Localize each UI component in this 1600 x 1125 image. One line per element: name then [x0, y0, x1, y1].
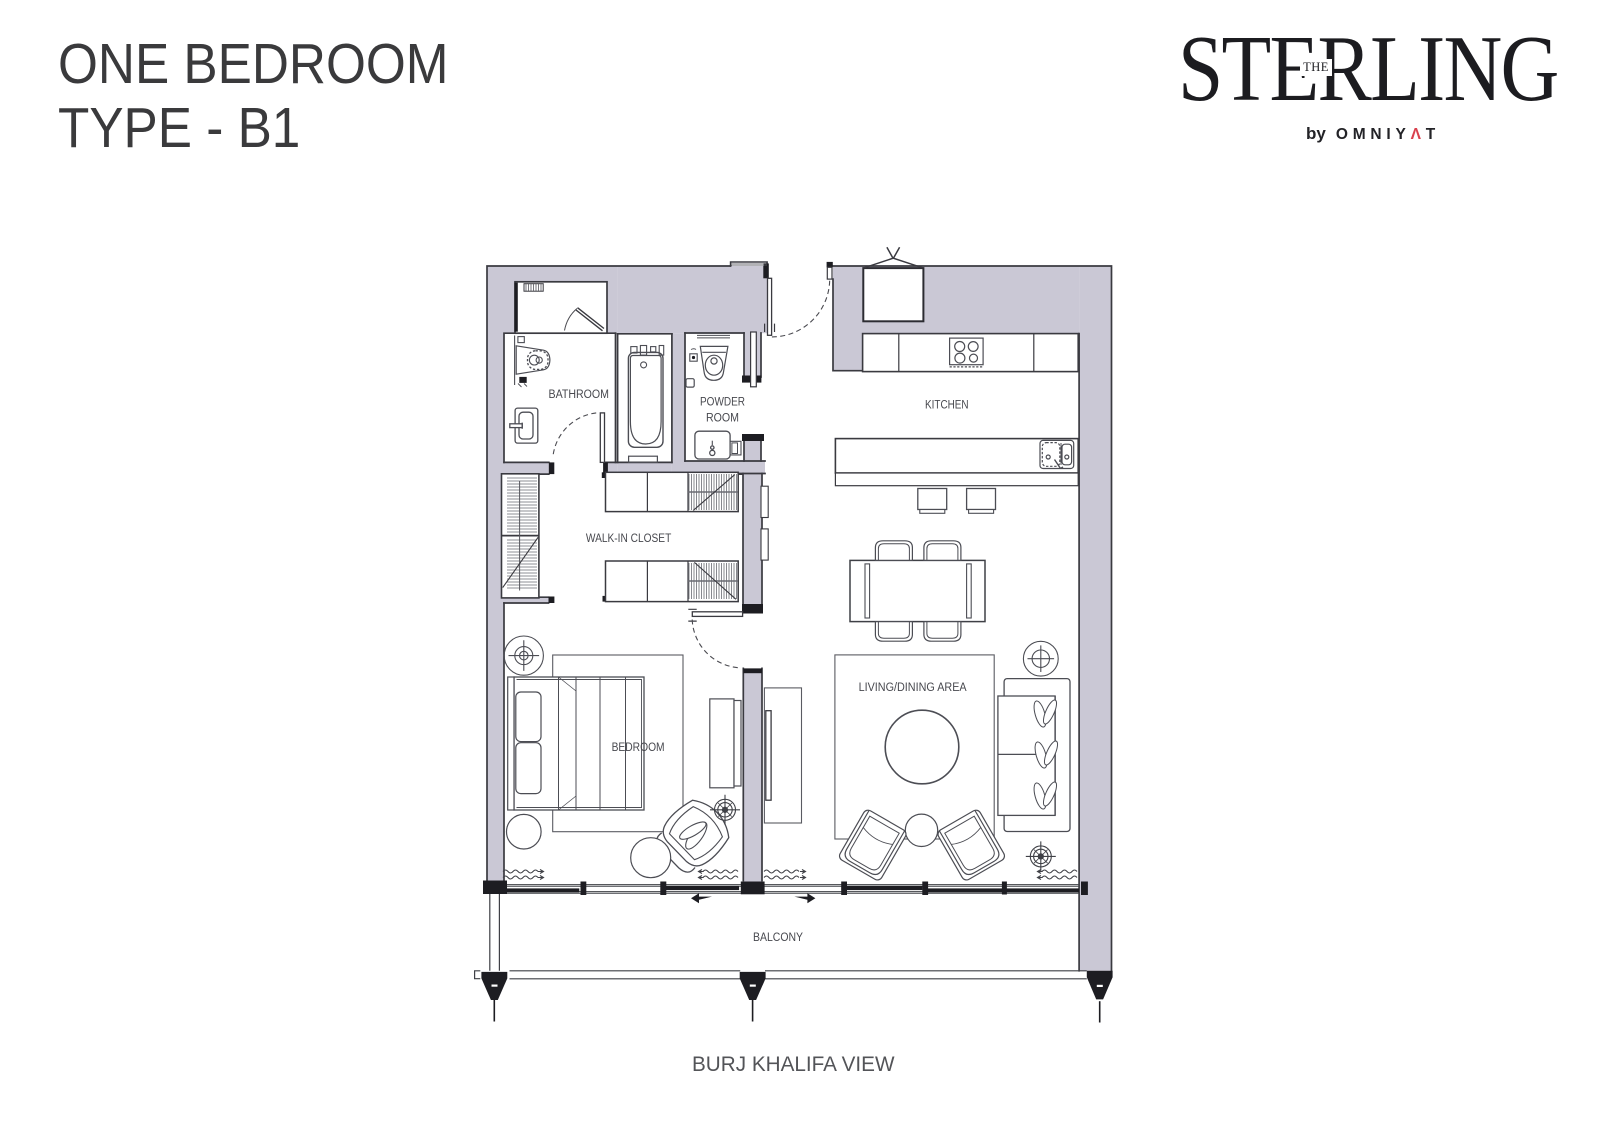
- svg-text:BURJ KHALIFA VIEW: BURJ KHALIFA VIEW: [692, 1052, 895, 1076]
- svg-text:BALCONY: BALCONY: [753, 932, 803, 944]
- svg-text:POWDER: POWDER: [700, 397, 745, 409]
- svg-text:ROOM: ROOM: [706, 413, 739, 425]
- svg-text:BEDROOM: BEDROOM: [612, 742, 665, 754]
- svg-text:WALK-IN CLOSET: WALK-IN CLOSET: [586, 533, 671, 545]
- svg-text:KITCHEN: KITCHEN: [925, 400, 969, 412]
- svg-text:LIVING/DINING AREA: LIVING/DINING AREA: [859, 682, 967, 694]
- svg-text:BATHROOM: BATHROOM: [549, 389, 610, 401]
